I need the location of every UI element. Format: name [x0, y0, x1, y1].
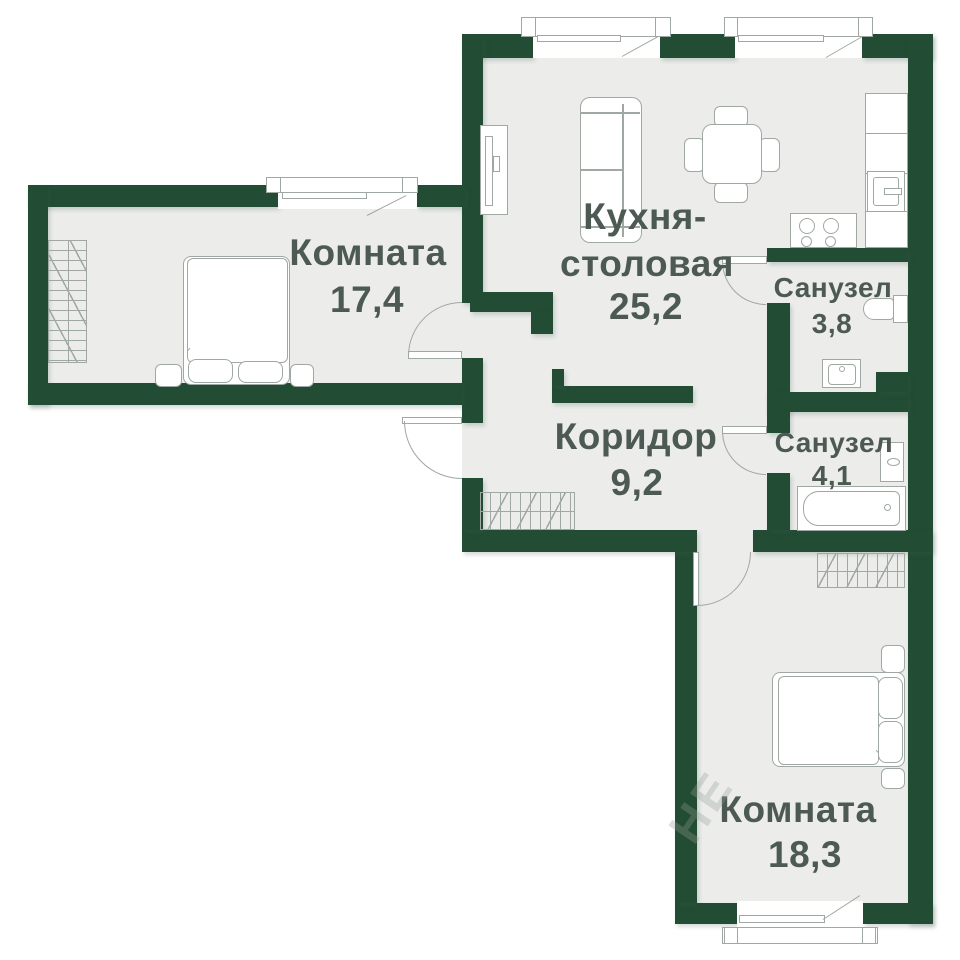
- wall-kitchen-corridor-stub: [552, 369, 564, 386]
- corridor-area: 9,2: [611, 462, 664, 504]
- corridor-label: Коридор: [555, 416, 718, 458]
- room2-window-post-right: [862, 927, 876, 944]
- kitchen-window1-sill: [521, 17, 671, 37]
- floor-plan: Комната 17,4 Кухня- столовая 25,2 Санузе…: [0, 0, 960, 960]
- tv-unit-icon: [480, 125, 508, 215]
- chair-bottom: [714, 182, 748, 203]
- toilet-tank: [893, 295, 908, 323]
- bed2-blanket-fold: [864, 750, 879, 765]
- wall-top-b: [660, 34, 735, 58]
- bath2-area: 4,1: [812, 460, 852, 492]
- room1-area: 17,4: [330, 279, 404, 321]
- corridor-wardrobe-icon: [480, 492, 575, 530]
- room2-window-leaf: [739, 915, 825, 923]
- sofa-armrest-top: [581, 112, 640, 114]
- counter-divider-1: [866, 133, 907, 134]
- corridor-wardrobe-center-line: [481, 511, 574, 512]
- kitchen-sink-faucet: [884, 188, 902, 195]
- bath1-sink-icon: [822, 359, 861, 388]
- room1-window-post-right: [402, 177, 418, 193]
- dining-table-icon: [702, 124, 762, 184]
- wall-right: [908, 34, 933, 924]
- wall-corridor-bottom: [462, 530, 697, 552]
- kitchen-window2-post-right: [858, 17, 873, 37]
- room1-window-leaf: [282, 192, 367, 199]
- wall-room2-top: [753, 530, 933, 552]
- bathtub-drain: [884, 504, 891, 511]
- kitchen-sink-icon: [867, 171, 905, 212]
- kitchen-window1-post-right: [655, 17, 671, 37]
- kitchen-area: 25,2: [609, 286, 683, 328]
- room2-window-post-left: [724, 927, 738, 944]
- kitchen-window1-leaf: [537, 35, 621, 42]
- room2-wardrobe-center-line: [818, 571, 904, 572]
- stove-burner-3: [801, 236, 812, 247]
- kitchen-window2-post-left: [724, 17, 738, 37]
- kitchen-window1-post-left: [521, 17, 536, 37]
- room1-window-sill: [266, 177, 418, 193]
- wall-main-vertical-b: [462, 358, 483, 423]
- wall-bath2-left-b: [767, 473, 790, 530]
- tv-screen: [485, 136, 493, 206]
- bed2-pillow-top: [878, 677, 903, 719]
- bath1-area: 3,8: [812, 308, 852, 340]
- stove-burner-1: [799, 218, 815, 234]
- bed1-blanket: [187, 258, 288, 363]
- wall-kitchen-corridor: [552, 386, 693, 403]
- wall-room1-top-a: [28, 185, 278, 207]
- wall-kitchen-nook-stub: [531, 312, 553, 334]
- washbasin-tap: [887, 458, 900, 466]
- wall-bath1-top: [767, 248, 908, 262]
- entrance-door-swing-arc: [404, 421, 462, 479]
- kitchen-window2-sill: [724, 17, 873, 37]
- room2-area: 18,3: [768, 834, 842, 876]
- sofa-seat-divider: [581, 169, 623, 171]
- bath2-label: Санузел: [775, 427, 894, 459]
- bathtub-icon: [797, 486, 906, 531]
- stove-burner-4: [825, 236, 836, 247]
- wall-room1-top-b: [417, 185, 465, 207]
- wall-bath-divider-stub: [876, 372, 908, 392]
- wall-room1-bottom: [28, 383, 462, 405]
- wardrobe-center-line: [68, 241, 69, 362]
- stove-icon: [790, 213, 857, 248]
- wall-room2-bottom-a: [675, 903, 737, 924]
- bed2-nightstand-bottom: [881, 768, 905, 789]
- kitchen-window2-leaf: [738, 35, 824, 42]
- bed1-bench-left: [155, 364, 182, 387]
- wall-room1-left: [28, 185, 48, 405]
- bed2-blanket: [778, 676, 879, 765]
- room1-window-post-left: [266, 177, 281, 193]
- bed1-pillow-left: [188, 359, 233, 383]
- room1-label: Комната: [289, 232, 446, 274]
- room2-wardrobe-icon: [817, 553, 905, 588]
- wall-bath-divider: [767, 392, 908, 412]
- bath1-label: Санузел: [774, 272, 893, 304]
- bed2-nightstand-top: [881, 645, 905, 673]
- stove-burner-2: [823, 218, 839, 234]
- room2-window-sill: [722, 927, 878, 944]
- kitchen-label-line2: столовая: [560, 243, 734, 285]
- bed1-bench-right: [290, 364, 314, 387]
- bed1-pillow-right: [238, 361, 283, 383]
- tv-mount: [493, 156, 500, 172]
- bath1-sink-faucet: [839, 366, 845, 372]
- chair-right: [759, 138, 780, 172]
- wall-room2-bottom-b: [863, 903, 933, 924]
- wardrobe-icon: [48, 240, 87, 363]
- wall-kitchen-nook-top: [470, 292, 553, 312]
- kitchen-label-line1: Кухня-: [583, 196, 706, 238]
- bed2-pillow-bottom: [878, 721, 903, 763]
